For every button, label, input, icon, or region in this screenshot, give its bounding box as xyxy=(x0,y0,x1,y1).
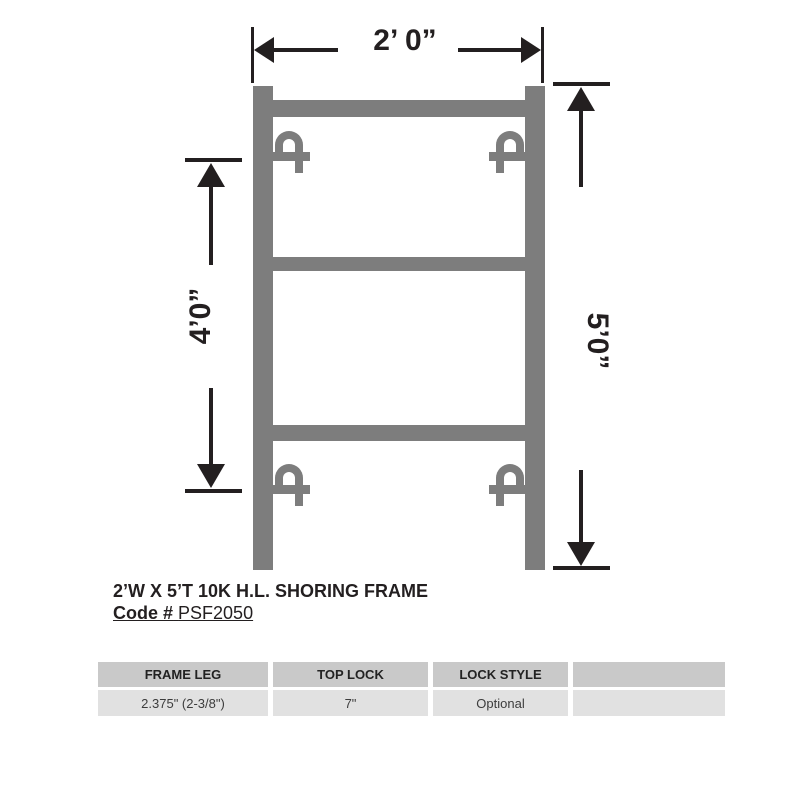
bottom-right-lock-icon xyxy=(488,464,530,507)
spec-table: FRAME LEG TOP LOCK LOCK STYLE 2.375" (2-… xyxy=(98,662,725,716)
top-left-lock-icon xyxy=(269,131,311,174)
table-cell-top-lock: 7" xyxy=(273,690,428,716)
overall-height-label: 5’0” xyxy=(580,313,614,370)
dim-line xyxy=(579,470,583,544)
lock-stem xyxy=(496,161,504,173)
code-value-text: PSF2050 xyxy=(178,603,253,623)
panel-spacing-label: 4’0” xyxy=(184,288,218,345)
dim-line xyxy=(272,48,338,52)
diagram-title: 2’W X 5’T 10K H.L. SHORING FRAME xyxy=(113,581,428,602)
top-right-lock-icon xyxy=(488,131,530,174)
dim-tick xyxy=(553,566,610,570)
table-cell-lock-style: Optional xyxy=(433,690,568,716)
dim-line xyxy=(209,388,213,466)
lock-arch xyxy=(275,464,303,485)
dim-line xyxy=(209,185,213,265)
lock-bar xyxy=(489,152,530,161)
arrow-down-icon xyxy=(197,464,225,488)
table-cell-empty xyxy=(573,690,725,716)
lock-arch xyxy=(496,131,524,152)
lock-arch xyxy=(275,131,303,152)
arrow-right-icon xyxy=(521,37,541,63)
shoring-frame-diagram: 2’ 0” 4’0” 5’0” 2’W X 5’T 10K H.L. SHORI… xyxy=(0,0,800,800)
bottom-left-lock-icon xyxy=(269,464,311,507)
width-dimension-label: 2’ 0” xyxy=(335,24,475,58)
arrow-up-icon xyxy=(197,163,225,187)
lock-stem xyxy=(496,494,504,506)
lock-bar xyxy=(269,485,310,494)
table-header-top-lock: TOP LOCK xyxy=(273,662,428,687)
dim-tick xyxy=(185,158,242,162)
code-label: Code # xyxy=(113,603,173,623)
frame-top-ledger xyxy=(260,100,538,117)
lock-arch xyxy=(496,464,524,485)
table-header-empty xyxy=(573,662,725,687)
arrow-up-icon xyxy=(567,87,595,111)
table-header-frame-leg: FRAME LEG xyxy=(98,662,268,687)
arrow-left-icon xyxy=(254,37,274,63)
lock-bar xyxy=(269,152,310,161)
table-cell-frame-leg: 2.375" (2-3/8") xyxy=(98,690,268,716)
lock-stem xyxy=(295,494,303,506)
product-code: Code # PSF2050 xyxy=(113,603,253,624)
lock-stem xyxy=(295,161,303,173)
lock-bar xyxy=(489,485,530,494)
dim-tick xyxy=(553,82,610,86)
arrow-down-icon xyxy=(567,542,595,566)
table-header-lock-style: LOCK STYLE xyxy=(433,662,568,687)
frame-middle-ledger xyxy=(270,257,528,271)
frame-bottom-ledger xyxy=(270,425,528,441)
dim-line xyxy=(579,109,583,187)
dim-tick xyxy=(185,489,242,493)
dim-tick xyxy=(541,27,544,83)
